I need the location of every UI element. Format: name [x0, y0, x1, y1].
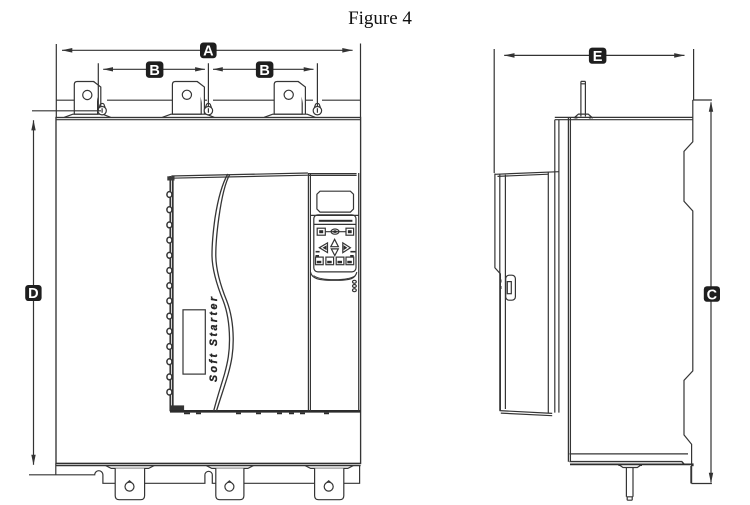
svg-text:B: B — [259, 63, 269, 79]
svg-text:D: D — [28, 286, 38, 302]
svg-text:C: C — [707, 287, 718, 303]
svg-text:Figure 4: Figure 4 — [348, 8, 412, 29]
svg-text:Soft Starter: Soft Starter — [208, 296, 220, 382]
svg-text:E: E — [593, 49, 603, 65]
svg-text:A: A — [203, 44, 214, 60]
svg-text:B: B — [149, 63, 159, 79]
